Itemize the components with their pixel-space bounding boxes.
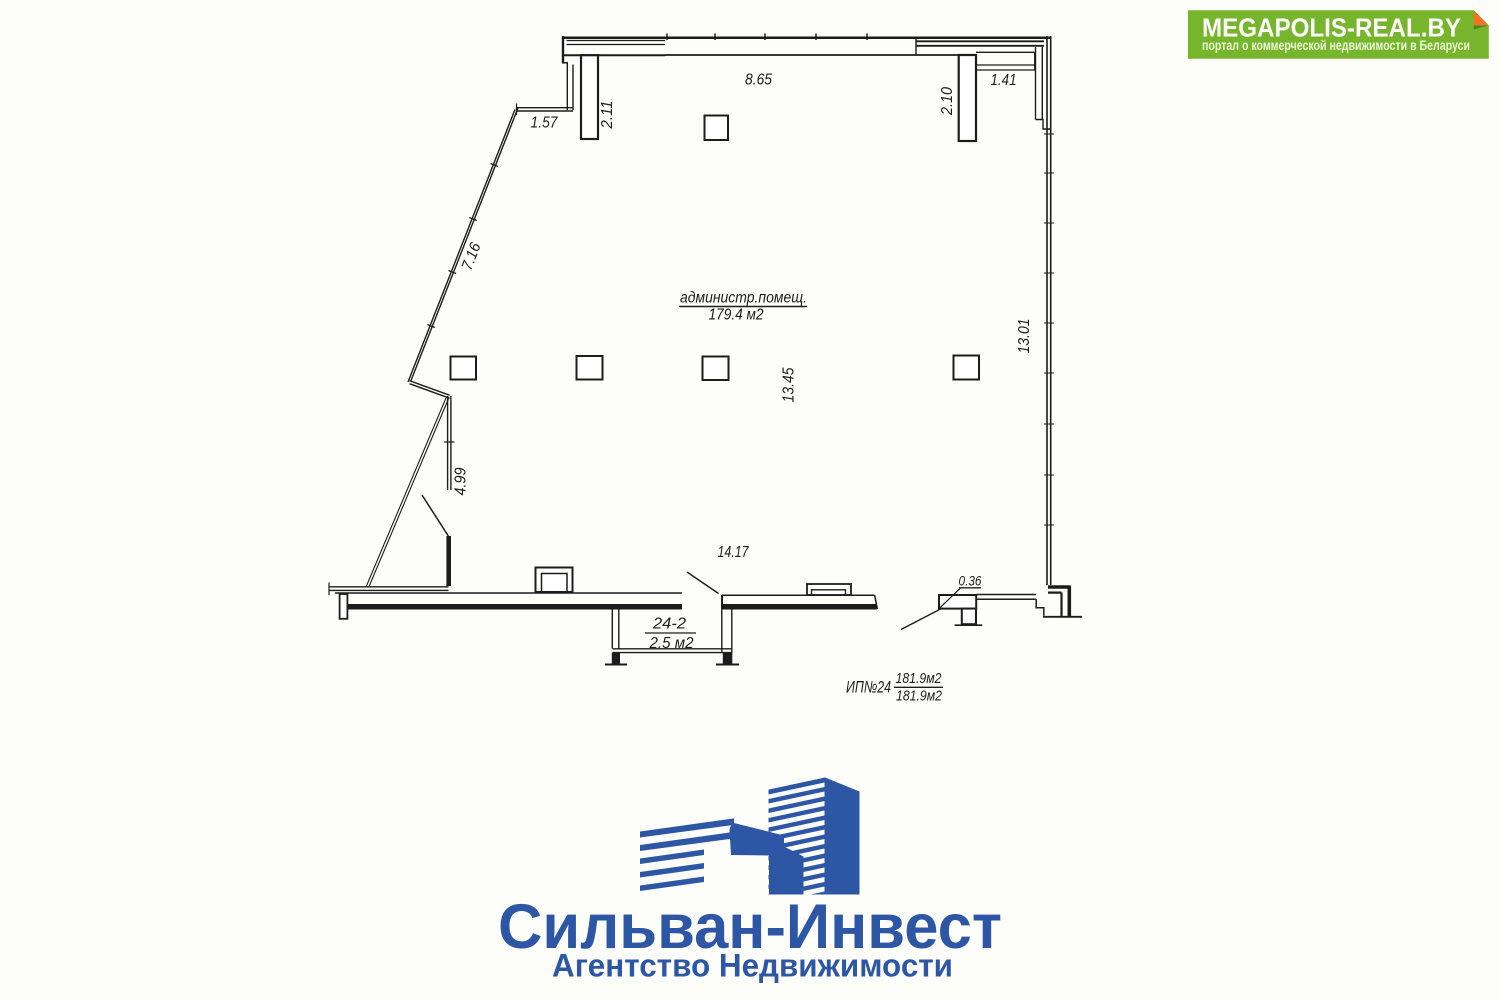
svg-text:ИП№24: ИП№24 (846, 679, 891, 697)
svg-text:1.41: 1.41 (991, 72, 1017, 89)
svg-text:7.16: 7.16 (459, 240, 485, 273)
svg-text:1.57: 1.57 (531, 115, 559, 132)
svg-text:13.01: 13.01 (1016, 319, 1033, 354)
svg-text:24-2: 24-2 (652, 616, 686, 633)
svg-text:2.5 м2: 2.5 м2 (649, 635, 694, 652)
svg-text:4.99: 4.99 (453, 467, 470, 495)
svg-text:2.10: 2.10 (939, 87, 956, 116)
svg-text:0.36: 0.36 (959, 574, 982, 589)
svg-text:181.9м2: 181.9м2 (896, 689, 942, 705)
svg-text:Агентство Недвижимости: Агентство Недвижимости (552, 948, 953, 984)
svg-text:179.4 м2: 179.4 м2 (709, 307, 764, 324)
svg-text:181.9м2: 181.9м2 (896, 671, 942, 687)
svg-text:2.11: 2.11 (599, 101, 616, 130)
svg-text:портал о коммерческой недвижим: портал о коммерческой недвижимости в Бел… (1202, 38, 1470, 53)
svg-text:8.65: 8.65 (745, 72, 772, 89)
svg-text:администр.помещ.: администр.помещ. (680, 290, 807, 307)
svg-text:14.17: 14.17 (718, 544, 750, 561)
svg-text:13.45: 13.45 (781, 367, 798, 402)
